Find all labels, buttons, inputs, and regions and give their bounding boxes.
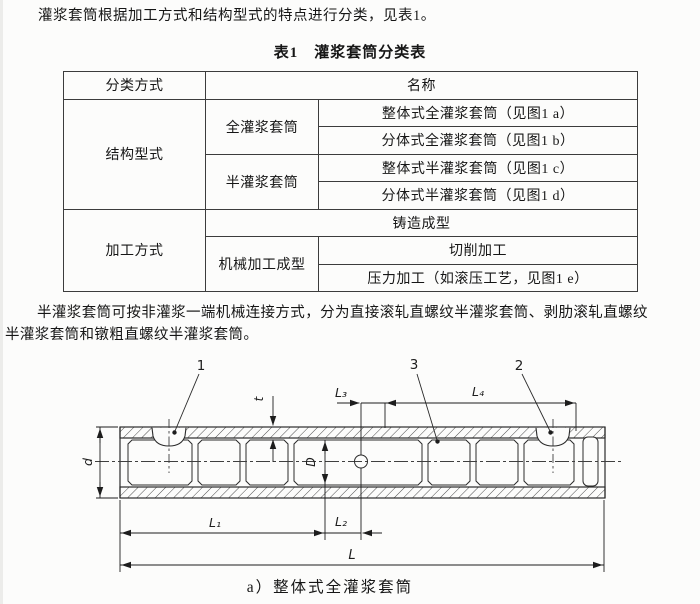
callout-3-label: 3: [410, 357, 419, 373]
table-row: 分类方式 名称: [64, 72, 638, 100]
cell-cutting: 切削加工: [319, 237, 638, 265]
top-wall-section: [120, 427, 605, 438]
cell-machining: 机械加工成型: [206, 237, 319, 292]
dim-L1-label: L₁: [209, 515, 221, 530]
dim-t-label: t: [252, 395, 266, 401]
callout-2-label: 2: [515, 358, 524, 374]
header-name: 名称: [206, 72, 638, 100]
cell-half-sleeve: 半灌浆套筒: [206, 154, 319, 209]
figure-caption: a）整体式全灌浆套筒: [0, 575, 660, 597]
cell-half-integral: 整体式半灌浆套筒（见图1 c）: [319, 154, 638, 182]
intro-paragraph: 灌浆套筒根据加工方式和结构型式的特点进行分类，见表1。: [9, 6, 684, 27]
note-line-2: 半灌浆套筒和镦粗直螺纹半灌浆套筒。: [5, 324, 692, 346]
callout-1-dot: [172, 430, 176, 434]
cell-processing-method: 加工方式: [64, 209, 206, 292]
dim-d: [96, 427, 118, 498]
callout-1-label: 1: [197, 358, 206, 374]
table-row: 加工方式 铸造成型: [64, 209, 638, 237]
callout-3-dot: [435, 439, 439, 443]
header-classification: 分类方式: [64, 72, 206, 100]
dim-L1-L2-L: [120, 500, 604, 572]
cell-pressure: 压力加工（如滚压工艺，见图1 e）: [319, 264, 638, 292]
cell-structure-type: 结构型式: [64, 99, 206, 209]
note-line-1: 半灌浆套筒可按非灌浆一端机械连接方式，分为直接滚轧直螺纹半灌浆套筒、剥肋滚轧直螺…: [5, 302, 692, 324]
cell-full-integral: 整体式全灌浆套筒（见图1 a）: [319, 99, 638, 127]
classification-table: 分类方式 名称 结构型式 全灌浆套筒 整体式全灌浆套筒（见图1 a） 分体式全灌…: [63, 71, 638, 292]
dim-L-label: L: [348, 548, 355, 563]
sleeve-section-drawing: 1 3 2 d t D: [0, 355, 700, 577]
document-page: 灌浆套筒根据加工方式和结构型式的特点进行分类，见表1。 表1 灌浆套筒分类表 分…: [0, 0, 700, 604]
note-paragraph: 半灌浆套筒可按非灌浆一端机械连接方式，分为直接滚轧直螺纹半灌浆套筒、剥肋滚轧直螺…: [5, 302, 692, 346]
dim-L2-label: L₂: [335, 514, 347, 529]
dim-d-label: d: [80, 458, 95, 466]
table-row: 结构型式 全灌浆套筒 整体式全灌浆套筒（见图1 a）: [64, 99, 638, 127]
dim-L4-label: L₄: [472, 384, 484, 399]
callout-2-dot: [548, 430, 552, 434]
cell-casting: 铸造成型: [206, 209, 638, 237]
dim-D-label: D: [303, 457, 318, 467]
bottom-wall-section: [120, 487, 605, 498]
dim-L3-label: L₃: [335, 385, 347, 400]
cell-full-split: 分体式全灌浆套筒（见图1 b）: [319, 127, 638, 155]
cell-full-sleeve: 全灌浆套筒: [206, 99, 319, 154]
table-title: 表1 灌浆套筒分类表: [0, 41, 700, 62]
cell-half-split: 分体式半灌浆套筒（见图1 d）: [319, 182, 638, 210]
